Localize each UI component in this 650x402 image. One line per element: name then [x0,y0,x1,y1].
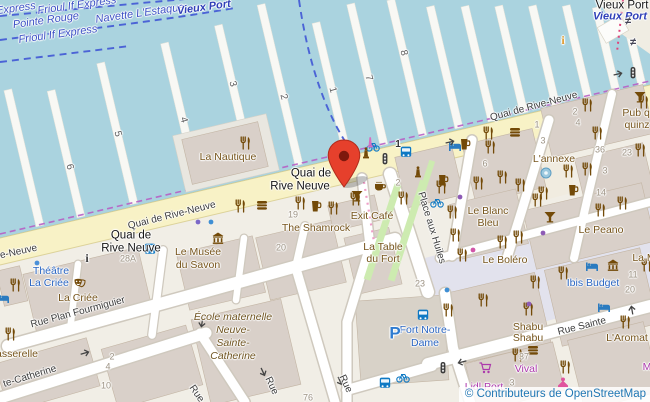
map-label: 28A [120,255,136,264]
map-label: Rue Sainte [557,316,607,338]
map-labels-layer: ExpressFrioul If ExpressPointe RougeNave… [0,0,650,402]
map-label: Le Musée [175,247,221,258]
map-label: Neuve- [216,325,250,336]
map-label: Rue [187,384,206,402]
map-label: 2 [109,353,114,362]
map-label: ue-Neuve [0,244,38,263]
map-label: Vieux Port [176,0,231,17]
map-label: ≠ [630,38,636,49]
map-label: La Criée [58,293,98,304]
map-label: 2 [395,179,400,188]
map-label: te-Catherine [2,364,58,390]
map-label: Rive Neuve [270,181,329,193]
map-label: Quai de Rive-Neuve [127,200,217,231]
map-label: 23 [622,149,632,158]
map-label: 3 [226,80,237,88]
map-label: Dame [411,338,439,349]
map-label: 37 [519,353,529,362]
map-label: Rue [263,376,280,397]
map-label: Catherine [210,351,256,362]
map-label: 20 [276,244,286,253]
map-label: Le Peano [579,225,624,236]
map-label: 14 [596,189,606,198]
map-label: 6 [63,163,74,171]
map-label: La Nautique [200,152,257,163]
map-label: L'Aromat [606,333,648,344]
map-label: 23 [415,280,425,289]
map-label: La Criée [29,278,69,289]
map-label: Fort Notre- [400,325,451,336]
map-label: Quai de [291,168,331,180]
map-label: 5 [111,130,122,138]
map-label: i [85,252,88,264]
map-label: 4 [177,116,188,124]
map-label: 10 [101,382,111,391]
map-label: 4 [575,119,580,128]
map-label: Le Blanc [468,206,509,217]
map-label: Vival [515,364,538,375]
map-label: Shabu [513,333,543,344]
map-label: 2 [572,108,577,117]
map-label: 6 [482,160,487,169]
map-label: P [389,325,400,342]
map-label: 11 [628,271,637,280]
map-label: Pub qu [622,108,650,119]
attribution-link[interactable]: © Contributeurs de OpenStreetMap [459,387,650,402]
map-label: 1 [534,121,539,130]
map-label: Théâtre [33,266,69,277]
map-label: Exit Café [351,211,394,222]
map-label: quinz [624,120,649,131]
map-label: 36 [595,146,605,155]
map-label: Place aux Huiles [415,191,446,265]
map-label: Express [0,1,36,17]
map-label: La Table [363,242,403,253]
map-label: Sainte- [216,338,249,349]
map-label: 3 [602,167,607,176]
map-label: asserelle [0,349,38,360]
map-label: 19 [288,211,298,220]
map-label: Shabu [513,322,543,333]
map-label: 7 [362,74,373,82]
map-label: 4 [105,363,110,372]
map-label: 8 [397,49,408,57]
map-label: Le Boléro [483,255,528,266]
map-label: The Shamrock [282,223,350,234]
map-label: Vieux Port [593,12,647,23]
map-canvas[interactable]: ExpressFrioul If ExpressPointe RougeNave… [0,0,650,402]
map-label: Rue [337,374,354,395]
map-label: Ibis Budget [567,278,620,289]
map-label: École maternelle [194,312,272,323]
map-label: 1 [395,140,401,150]
map-label: La M [632,253,650,264]
map-label: 1 [326,86,337,94]
map-label: L'annexe [533,154,575,165]
map-label: Bleu [477,218,498,229]
map-label: 20 [625,286,635,295]
map-label: 3 [540,137,545,146]
map-label: i [561,34,564,46]
map-label: du Savon [176,260,220,271]
map-label: du Fort [366,254,399,265]
map-label: Quai de [111,230,151,242]
map-label: 76 [303,394,313,402]
map-label: ≠ [625,17,631,28]
map-label: M [643,362,650,373]
map-label: 2 [277,93,288,101]
